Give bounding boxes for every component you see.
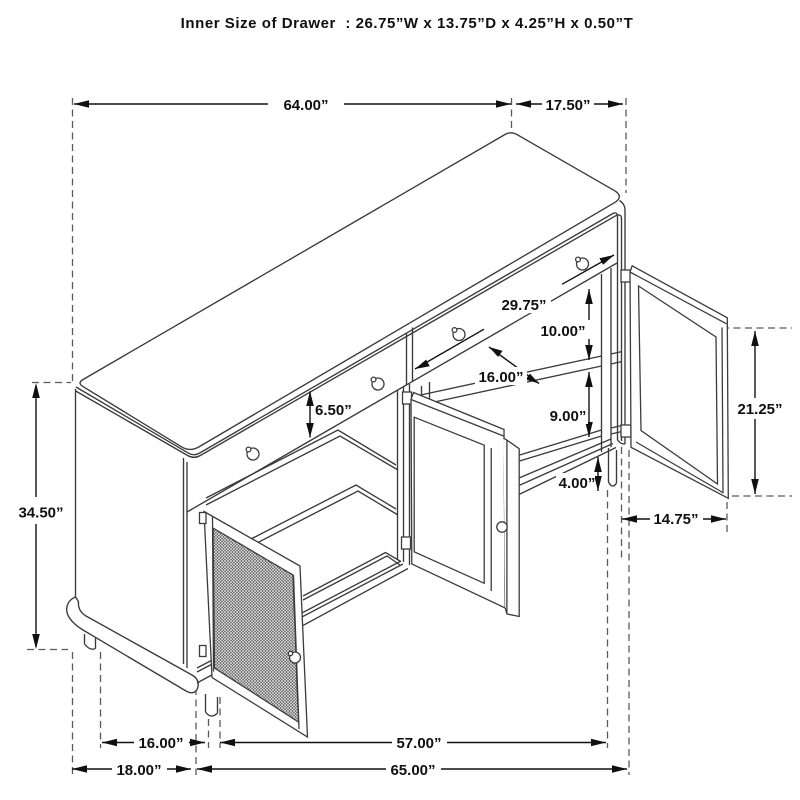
- svg-text:14.75”: 14.75”: [653, 511, 698, 528]
- svg-text:16.00”: 16.00”: [138, 735, 183, 752]
- svg-text:6.50”: 6.50”: [315, 402, 352, 419]
- svg-text:34.50”: 34.50”: [18, 505, 63, 522]
- svg-text:16.00”: 16.00”: [478, 369, 523, 386]
- svg-text:65.00”: 65.00”: [390, 762, 435, 779]
- svg-text:10.00”: 10.00”: [540, 323, 585, 340]
- svg-text:17.50”: 17.50”: [545, 97, 590, 114]
- svg-text:57.00”: 57.00”: [396, 735, 441, 752]
- svg-text:21.25”: 21.25”: [737, 401, 782, 418]
- svg-text:29.75”: 29.75”: [501, 297, 546, 314]
- svg-text:64.00”: 64.00”: [283, 97, 328, 114]
- svg-text:4.00”: 4.00”: [559, 475, 596, 492]
- svg-text:18.00”: 18.00”: [116, 762, 161, 779]
- svg-text:9.00”: 9.00”: [550, 408, 587, 425]
- svg-text:Inner Size of Drawer : 26.75”: Inner Size of Drawer : 26.75”W x 13.75”D…: [181, 15, 634, 32]
